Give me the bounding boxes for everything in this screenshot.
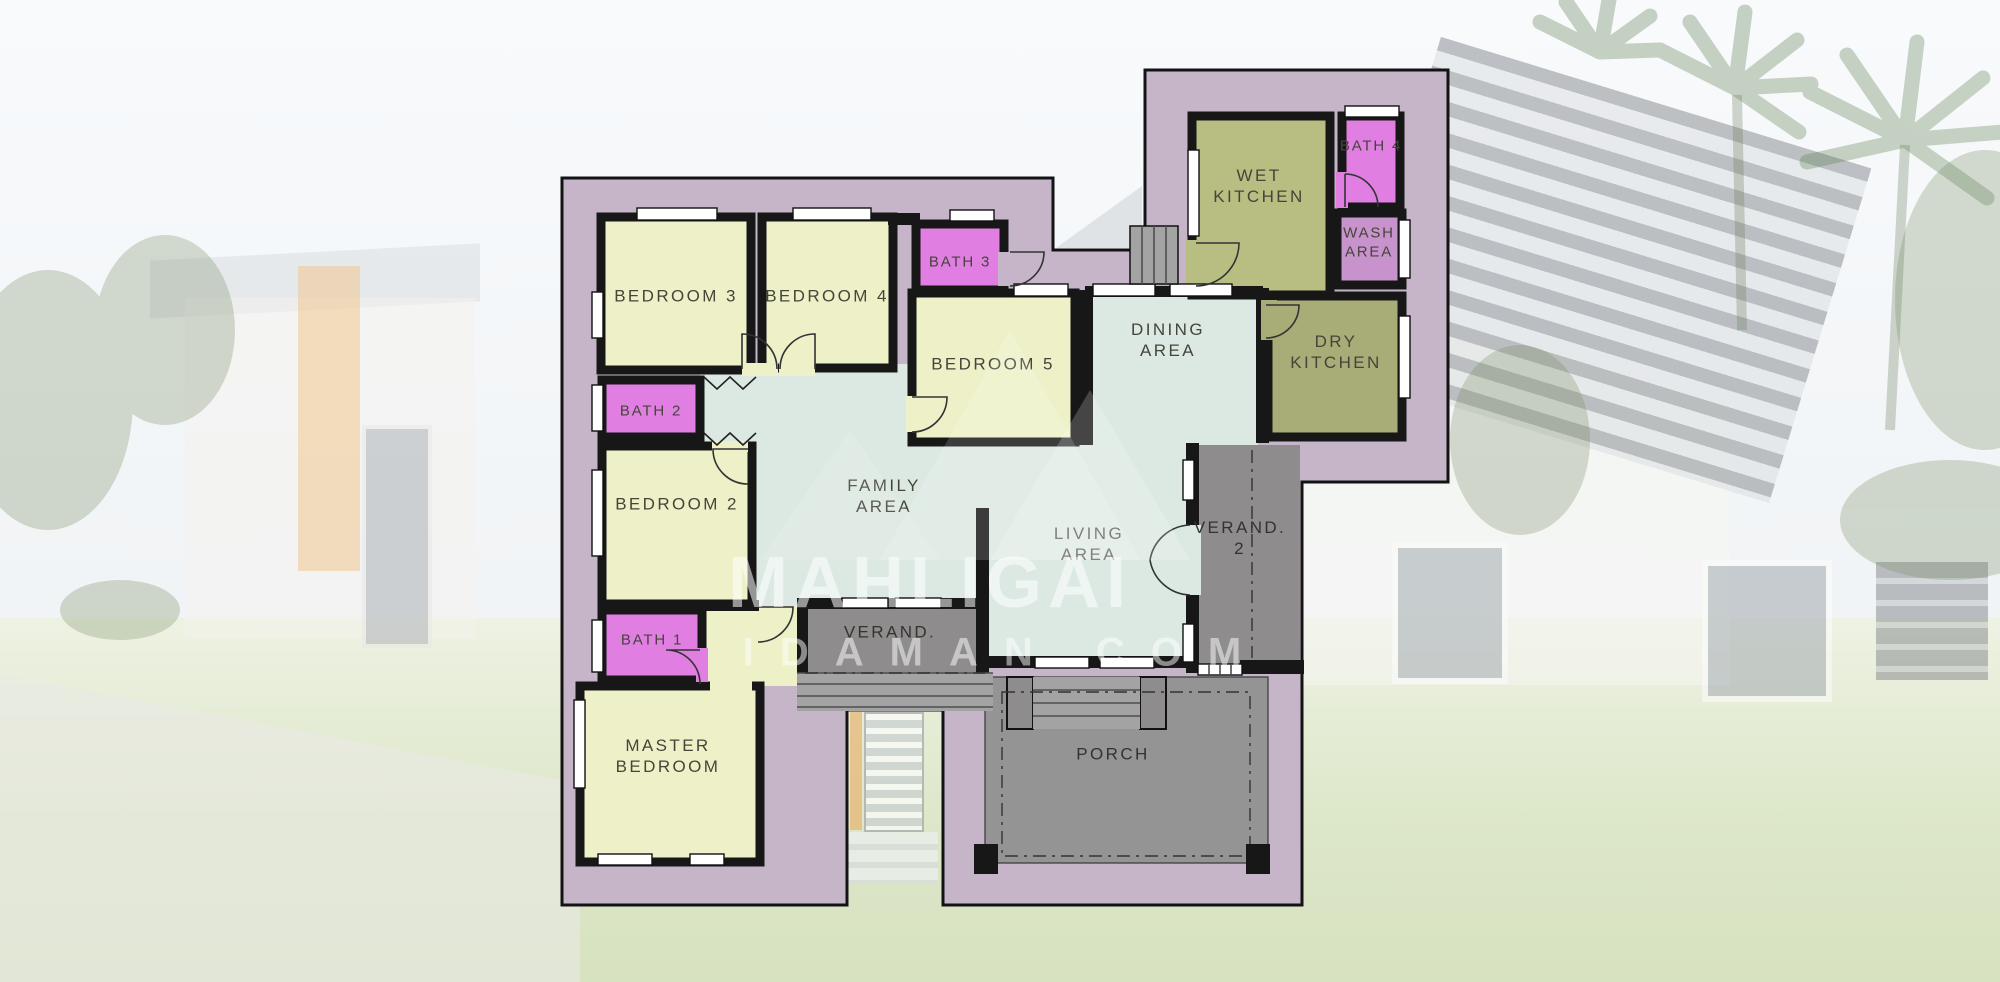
label-dry-kitchen: DRY KITCHEN (1271, 331, 1401, 374)
label-bath-2: BATH 2 (620, 403, 682, 422)
label-verandah-2: VERAND. 2 (1190, 517, 1290, 560)
label-wash-area: WASH AREA (1324, 224, 1414, 262)
room-labels: BEDROOM 3 BEDROOM 4 BATH 3 BEDROOM 5 BAT… (0, 0, 2000, 982)
label-bedroom-4: BEDROOM 4 (765, 285, 889, 306)
label-bath-1: BATH 1 (621, 632, 683, 651)
label-porch: PORCH (1076, 743, 1149, 764)
label-dining-area: DINING AREA (1108, 319, 1228, 362)
label-bedroom-3: BEDROOM 3 (614, 285, 738, 306)
label-bedroom-5: BEDROOM 5 (931, 353, 1055, 374)
label-wet-kitchen: WET KITCHEN (1194, 165, 1324, 208)
floorplan-screenshot: BEDROOM 3 BEDROOM 4 BATH 3 BEDROOM 5 BAT… (0, 0, 2000, 982)
label-verandah: VERAND. (844, 621, 936, 642)
label-bath-3: BATH 3 (929, 254, 991, 273)
label-bath-4: BATH 4 (1340, 138, 1402, 157)
label-bedroom-2: BEDROOM 2 (615, 493, 739, 514)
label-living-area: LIVING AREA (1034, 523, 1144, 566)
label-family-area: FAMILY AREA (824, 475, 944, 518)
label-master-bedroom: MASTER BEDROOM (603, 735, 733, 778)
